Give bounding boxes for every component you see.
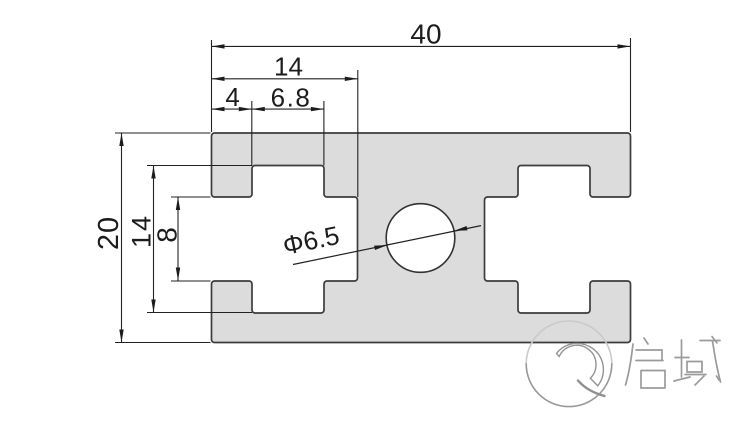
svg-text:8: 8 <box>152 227 183 243</box>
svg-text:6.8: 6.8 <box>271 83 312 113</box>
svg-text:14: 14 <box>274 52 303 82</box>
svg-text:40: 40 <box>410 19 441 50</box>
svg-text:4: 4 <box>225 82 239 112</box>
svg-text:Φ6.5: Φ6.5 <box>280 220 342 261</box>
svg-text:20: 20 <box>93 216 125 250</box>
